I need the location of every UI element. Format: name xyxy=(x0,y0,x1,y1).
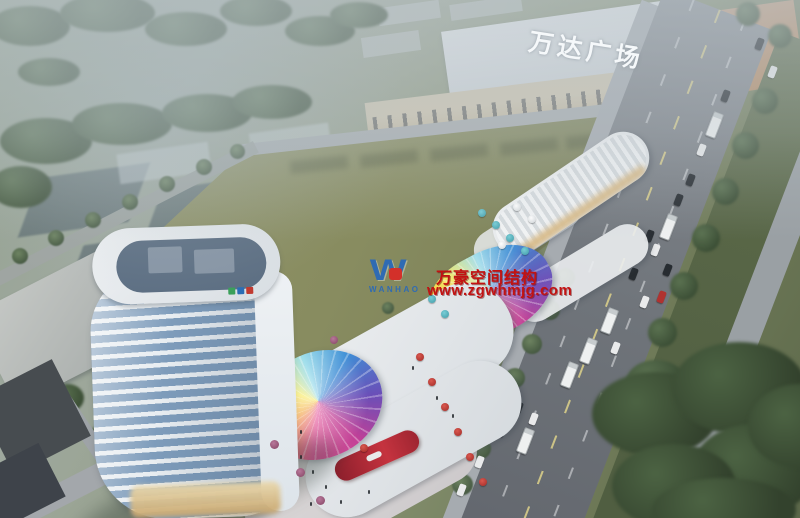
pedestrian xyxy=(368,490,370,494)
flower-shrub xyxy=(316,496,325,505)
umbrella xyxy=(478,209,486,217)
street-tree xyxy=(12,248,28,264)
street-tree xyxy=(122,194,138,210)
street-tree xyxy=(230,144,245,159)
umbrella xyxy=(441,403,449,411)
street-tree xyxy=(196,159,212,175)
roadside-tree xyxy=(692,224,720,252)
logo-green-square xyxy=(228,287,235,294)
tree-cluster xyxy=(18,58,80,86)
office-tower xyxy=(87,219,297,518)
umbrella xyxy=(479,478,487,486)
aerial-rendering-scene: 万达广场 W WANHAO 万豪空间结构 www.zgwhmjg.com xyxy=(0,0,800,518)
roadside-tree xyxy=(670,272,698,300)
pedestrian xyxy=(452,414,454,418)
roadside-tree xyxy=(752,88,778,114)
umbrella xyxy=(466,453,474,461)
pedestrian xyxy=(412,366,414,370)
distant-rooftop xyxy=(449,0,523,21)
watermark-logo-badge xyxy=(389,268,402,280)
pedestrian xyxy=(325,485,327,489)
watermark-website: www.zgwhmjg.com xyxy=(427,282,572,299)
tower-crown xyxy=(91,223,282,306)
umbrella xyxy=(521,247,529,255)
umbrella xyxy=(528,215,536,223)
tree-cluster xyxy=(330,2,388,28)
logo-blue-square xyxy=(237,287,244,294)
tower-roof xyxy=(115,236,267,293)
tree-cluster xyxy=(145,12,227,46)
distant-rooftop xyxy=(361,30,421,58)
tower-brand-logo xyxy=(228,287,253,295)
rooftop-unit xyxy=(194,248,235,273)
flower-shrub xyxy=(330,336,338,344)
roadside-tree xyxy=(712,178,739,205)
umbrella xyxy=(416,353,424,361)
umbrella xyxy=(513,203,521,211)
flower-shrub xyxy=(270,440,279,449)
umbrella xyxy=(454,428,462,436)
retail-base-lights xyxy=(130,481,281,518)
watermark-logo-text: WANHAO xyxy=(369,285,420,294)
flower-shrub xyxy=(296,468,305,477)
terrace-plant xyxy=(382,302,394,314)
umbrella xyxy=(360,444,368,452)
pedestrian xyxy=(340,500,342,504)
tree-cluster xyxy=(72,103,172,145)
roadside-tree xyxy=(768,24,792,48)
umbrella xyxy=(428,378,436,386)
tree-cluster xyxy=(232,85,312,119)
sidewalk-tree xyxy=(522,334,542,354)
street-tree xyxy=(159,176,175,192)
street-tree xyxy=(48,230,64,246)
pedestrian xyxy=(300,430,302,434)
pedestrian xyxy=(310,502,312,506)
pedestrian xyxy=(436,396,438,400)
logo-red-square xyxy=(246,287,253,294)
umbrella xyxy=(492,221,500,229)
rooftop-unit xyxy=(148,246,183,273)
roadside-tree xyxy=(732,132,759,159)
roadside-tree xyxy=(736,2,760,26)
tree-cluster xyxy=(220,0,292,26)
screen-graphic xyxy=(366,450,383,462)
tree-cluster xyxy=(60,0,155,32)
umbrella xyxy=(506,234,514,242)
umbrella xyxy=(441,310,449,318)
umbrella xyxy=(498,241,506,249)
roadside-tree xyxy=(648,318,677,347)
